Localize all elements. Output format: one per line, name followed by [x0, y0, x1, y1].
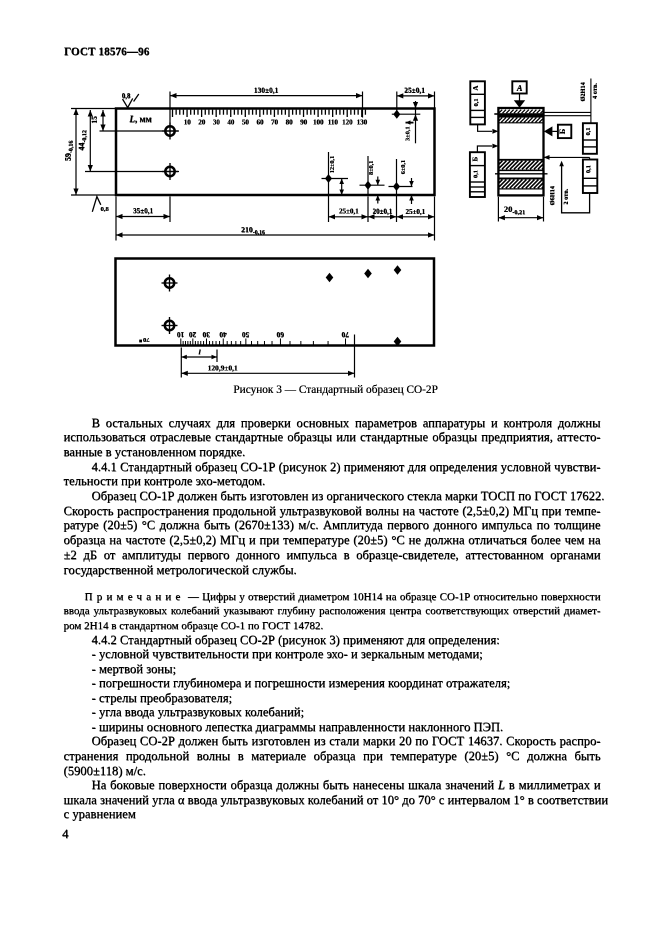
svg-text:100: 100 — [313, 118, 324, 126]
svg-text:12±0,1: 12±0,1 — [329, 156, 336, 173]
svg-text:120,9±0,1: 120,9±0,1 — [208, 363, 238, 372]
svg-text:40: 40 — [227, 118, 235, 126]
svg-text:0,1: 0,1 — [585, 165, 592, 173]
svg-text:50: 50 — [242, 118, 250, 126]
svg-text:110: 110 — [328, 118, 339, 126]
svg-text:30: 30 — [213, 118, 221, 126]
svg-text:120: 120 — [342, 118, 353, 126]
svg-text:90: 90 — [300, 118, 308, 126]
svg-text:25±0,1: 25±0,1 — [404, 86, 425, 95]
svg-text:0,8: 0,8 — [100, 206, 109, 213]
svg-text:130: 130 — [357, 118, 368, 126]
svg-text:70: 70 — [271, 118, 279, 126]
svg-text:35±0,1: 35±0,1 — [133, 207, 154, 215]
svg-text:25±0,1: 25±0,1 — [405, 208, 425, 216]
svg-text:20: 20 — [198, 118, 206, 126]
svg-text:60: 60 — [256, 118, 264, 126]
svg-text:80: 80 — [286, 118, 294, 126]
svg-text:l: l — [198, 347, 201, 356]
svg-text:Б: Б — [471, 157, 479, 162]
svg-text:0,1: 0,1 — [473, 99, 480, 107]
svg-text:59-0,16: 59-0,16 — [64, 141, 75, 162]
svg-text:25±0,1: 25±0,1 — [339, 207, 359, 215]
svg-text:А: А — [516, 84, 523, 93]
svg-text:130±0,1: 130±0,1 — [254, 86, 279, 95]
svg-text:44-0,12: 44-0,12 — [77, 130, 88, 151]
svg-text:40: 40 — [219, 330, 227, 339]
svg-text:0,1: 0,1 — [585, 128, 592, 136]
svg-text:Ø2H14: Ø2H14 — [580, 82, 587, 102]
svg-text:6±0,1: 6±0,1 — [400, 160, 407, 174]
svg-text:20-0,21: 20-0,21 — [504, 205, 525, 216]
svg-text:30: 30 — [203, 330, 211, 339]
svg-text:Б: Б — [558, 128, 567, 134]
svg-text:Ø6H14: Ø6H14 — [549, 185, 556, 205]
svg-text:10: 10 — [177, 330, 185, 339]
svg-text:0,1: 0,1 — [472, 170, 479, 178]
svg-text:15: 15 — [90, 116, 99, 124]
svg-text:L, мм: L, мм — [128, 114, 151, 124]
svg-text:10: 10 — [184, 118, 192, 126]
svg-text:2 отв.: 2 отв. — [563, 188, 570, 204]
svg-text:70: 70 — [342, 330, 350, 339]
svg-text:70: 70 — [143, 336, 150, 343]
svg-text:20±0,1: 20±0,1 — [373, 208, 393, 216]
svg-text:60: 60 — [277, 330, 285, 339]
svg-text:А: А — [472, 86, 480, 91]
svg-text:20: 20 — [189, 330, 197, 339]
svg-text:4 отв.: 4 отв. — [592, 83, 599, 99]
svg-text:8±0,1: 8±0,1 — [368, 161, 375, 175]
svg-text:50: 50 — [242, 330, 250, 339]
svg-text:3±0,1: 3±0,1 — [404, 127, 411, 142]
